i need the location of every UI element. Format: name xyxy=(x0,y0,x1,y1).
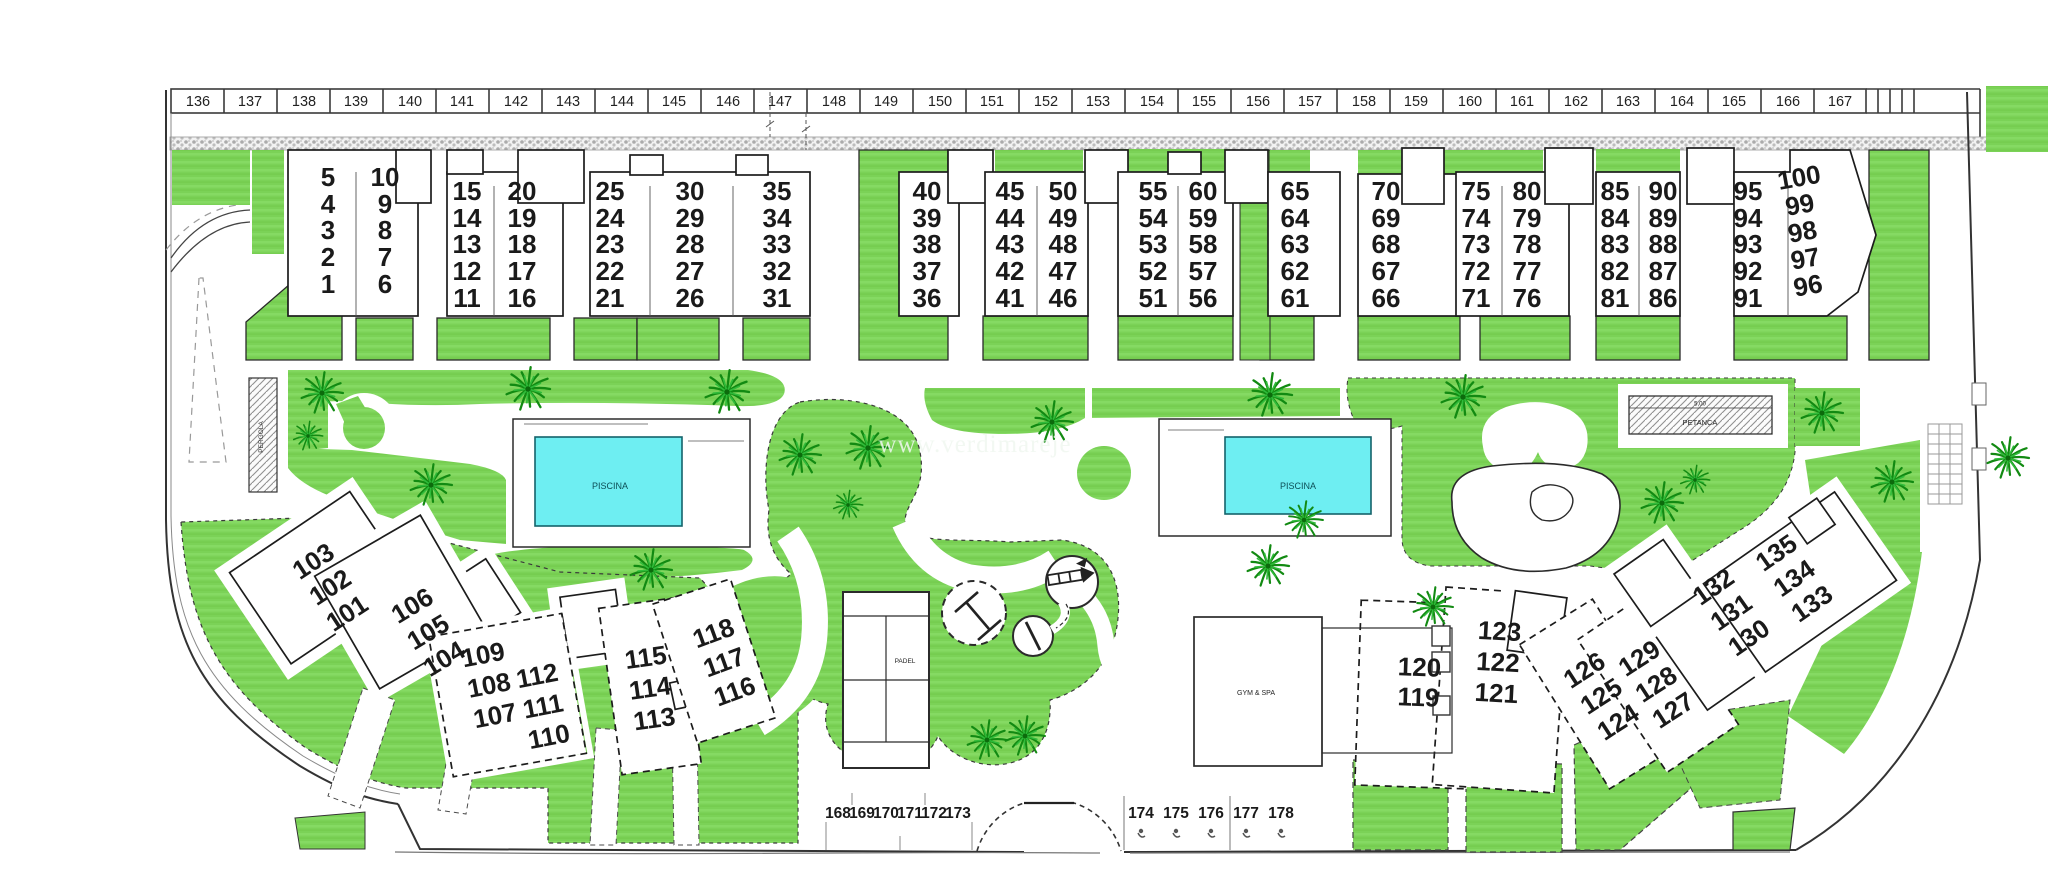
svg-text:55: 55 xyxy=(1139,176,1168,206)
svg-text:5,00: 5,00 xyxy=(1694,402,1706,408)
svg-text:158: 158 xyxy=(1352,94,1376,110)
svg-text:17: 17 xyxy=(508,256,537,286)
svg-text:37: 37 xyxy=(913,256,942,286)
svg-text:62: 62 xyxy=(1281,256,1310,286)
svg-text:73: 73 xyxy=(1462,229,1491,259)
svg-text:46: 46 xyxy=(1049,283,1078,313)
svg-text:PISCINA: PISCINA xyxy=(592,481,628,491)
svg-text:121: 121 xyxy=(1474,677,1519,709)
svg-text:27: 27 xyxy=(676,256,705,286)
svg-text:85: 85 xyxy=(1601,176,1630,206)
svg-text:6: 6 xyxy=(378,269,392,299)
svg-text:171: 171 xyxy=(897,805,923,822)
svg-text:86: 86 xyxy=(1649,283,1678,313)
svg-text:82: 82 xyxy=(1601,256,1630,286)
svg-text:75: 75 xyxy=(1462,176,1491,206)
svg-text:175: 175 xyxy=(1163,805,1189,822)
svg-text:80: 80 xyxy=(1513,176,1542,206)
svg-text:71: 71 xyxy=(1462,283,1491,313)
svg-text:67: 67 xyxy=(1372,256,1401,286)
svg-text:154: 154 xyxy=(1140,94,1164,110)
svg-text:168: 168 xyxy=(825,805,851,822)
svg-text:53: 53 xyxy=(1139,229,1168,259)
svg-text:38: 38 xyxy=(913,229,942,259)
svg-text:88: 88 xyxy=(1649,229,1678,259)
svg-text:178: 178 xyxy=(1268,805,1294,822)
svg-text:173: 173 xyxy=(945,805,971,822)
svg-text:164: 164 xyxy=(1670,94,1694,110)
svg-text:177: 177 xyxy=(1233,805,1259,822)
svg-text:48: 48 xyxy=(1049,229,1078,259)
svg-text:41: 41 xyxy=(996,283,1025,313)
svg-text:50: 50 xyxy=(1049,176,1078,206)
svg-text:7: 7 xyxy=(378,242,392,272)
svg-text:156: 156 xyxy=(1246,94,1270,110)
svg-text:PERGOLA: PERGOLA xyxy=(258,421,265,453)
svg-text:83: 83 xyxy=(1601,229,1630,259)
svg-text:113: 113 xyxy=(631,701,677,737)
svg-text:149: 149 xyxy=(874,94,898,110)
svg-text:56: 56 xyxy=(1189,283,1218,313)
svg-text:161: 161 xyxy=(1510,94,1534,110)
svg-text:147: 147 xyxy=(768,94,792,110)
svg-text:92: 92 xyxy=(1734,256,1763,286)
svg-text:51: 51 xyxy=(1139,283,1168,313)
svg-text:143: 143 xyxy=(556,94,580,110)
svg-text:114: 114 xyxy=(627,670,673,706)
svg-text:81: 81 xyxy=(1601,283,1630,313)
svg-text:115: 115 xyxy=(623,640,669,676)
svg-text:140: 140 xyxy=(398,94,422,110)
svg-text:18: 18 xyxy=(508,229,537,259)
svg-text:146: 146 xyxy=(716,94,740,110)
svg-text:PADEL: PADEL xyxy=(895,658,916,665)
svg-text:30: 30 xyxy=(676,176,705,206)
svg-text:PISCINA: PISCINA xyxy=(1280,481,1316,491)
svg-text:12: 12 xyxy=(453,256,482,286)
svg-text:152: 152 xyxy=(1034,94,1058,110)
svg-text:162: 162 xyxy=(1564,94,1588,110)
svg-text:65: 65 xyxy=(1281,176,1310,206)
svg-text:26: 26 xyxy=(676,283,705,313)
svg-text:166: 166 xyxy=(1776,94,1800,110)
svg-text:63: 63 xyxy=(1281,229,1310,259)
svg-text:96: 96 xyxy=(1791,268,1825,303)
svg-text:45: 45 xyxy=(996,176,1025,206)
svg-text:155: 155 xyxy=(1192,94,1216,110)
svg-text:61: 61 xyxy=(1281,283,1310,313)
svg-text:157: 157 xyxy=(1298,94,1322,110)
svg-text:33: 33 xyxy=(763,229,792,259)
svg-text:21: 21 xyxy=(596,283,625,313)
svg-text:119: 119 xyxy=(1397,681,1440,712)
svg-text:43: 43 xyxy=(996,229,1025,259)
svg-text:167: 167 xyxy=(1828,94,1852,110)
svg-text:142: 142 xyxy=(504,94,528,110)
svg-text:87: 87 xyxy=(1649,256,1678,286)
svg-text:159: 159 xyxy=(1404,94,1428,110)
svg-text:60: 60 xyxy=(1189,176,1218,206)
svg-text:137: 137 xyxy=(238,94,262,110)
svg-text:66: 66 xyxy=(1372,283,1401,313)
svg-text:15: 15 xyxy=(453,176,482,206)
svg-text:32: 32 xyxy=(763,256,792,286)
svg-text:GYM & SPA: GYM & SPA xyxy=(1237,690,1275,697)
svg-text:169: 169 xyxy=(849,805,875,822)
svg-text:25: 25 xyxy=(596,176,625,206)
svg-text:23: 23 xyxy=(596,229,625,259)
svg-text:91: 91 xyxy=(1734,283,1763,313)
svg-text:10: 10 xyxy=(371,162,400,192)
svg-text:68: 68 xyxy=(1372,229,1401,259)
svg-text:136: 136 xyxy=(186,94,210,110)
svg-text:22: 22 xyxy=(596,256,625,286)
svg-text:174: 174 xyxy=(1128,805,1154,822)
svg-text:47: 47 xyxy=(1049,256,1078,286)
svg-text:36: 36 xyxy=(913,283,942,313)
svg-text:93: 93 xyxy=(1734,229,1763,259)
svg-text:72: 72 xyxy=(1462,256,1491,286)
svg-text:www.verdimareje: www.verdimareje xyxy=(878,431,1071,458)
svg-text:2: 2 xyxy=(321,242,335,272)
svg-text:58: 58 xyxy=(1189,229,1218,259)
svg-text:52: 52 xyxy=(1139,256,1168,286)
svg-text:16: 16 xyxy=(508,283,537,313)
svg-text:144: 144 xyxy=(610,94,634,110)
svg-text:139: 139 xyxy=(344,94,368,110)
svg-text:95: 95 xyxy=(1734,176,1763,206)
svg-text:170: 170 xyxy=(873,805,899,822)
svg-text:90: 90 xyxy=(1649,176,1678,206)
svg-text:28: 28 xyxy=(676,229,705,259)
svg-text:1: 1 xyxy=(321,269,335,299)
svg-text:122: 122 xyxy=(1476,646,1521,678)
svg-text:141: 141 xyxy=(450,94,474,110)
svg-text:123: 123 xyxy=(1477,615,1522,647)
svg-text:11: 11 xyxy=(453,283,481,313)
svg-text:3: 3 xyxy=(321,215,335,245)
svg-text:77: 77 xyxy=(1513,256,1542,286)
svg-text:PETANCA: PETANCA xyxy=(1683,418,1718,427)
svg-text:150: 150 xyxy=(928,94,952,110)
svg-text:151: 151 xyxy=(980,94,1004,110)
svg-text:35: 35 xyxy=(763,176,792,206)
svg-text:5: 5 xyxy=(321,162,335,192)
svg-text:153: 153 xyxy=(1086,94,1110,110)
svg-text:13: 13 xyxy=(453,229,482,259)
svg-text:120: 120 xyxy=(1397,651,1441,682)
svg-text:165: 165 xyxy=(1722,94,1746,110)
svg-text:172: 172 xyxy=(921,805,947,822)
svg-text:8: 8 xyxy=(378,215,392,245)
svg-text:78: 78 xyxy=(1513,229,1542,259)
svg-text:138: 138 xyxy=(292,94,316,110)
svg-text:70: 70 xyxy=(1372,176,1401,206)
svg-text:31: 31 xyxy=(763,283,792,313)
svg-text:42: 42 xyxy=(996,256,1025,286)
svg-text:160: 160 xyxy=(1458,94,1482,110)
svg-text:40: 40 xyxy=(913,176,942,206)
svg-text:176: 176 xyxy=(1198,805,1224,822)
svg-text:163: 163 xyxy=(1616,94,1640,110)
svg-text:145: 145 xyxy=(662,94,686,110)
svg-text:76: 76 xyxy=(1513,283,1542,313)
svg-text:148: 148 xyxy=(822,94,846,110)
svg-text:57: 57 xyxy=(1189,256,1218,286)
svg-text:20: 20 xyxy=(508,176,537,206)
